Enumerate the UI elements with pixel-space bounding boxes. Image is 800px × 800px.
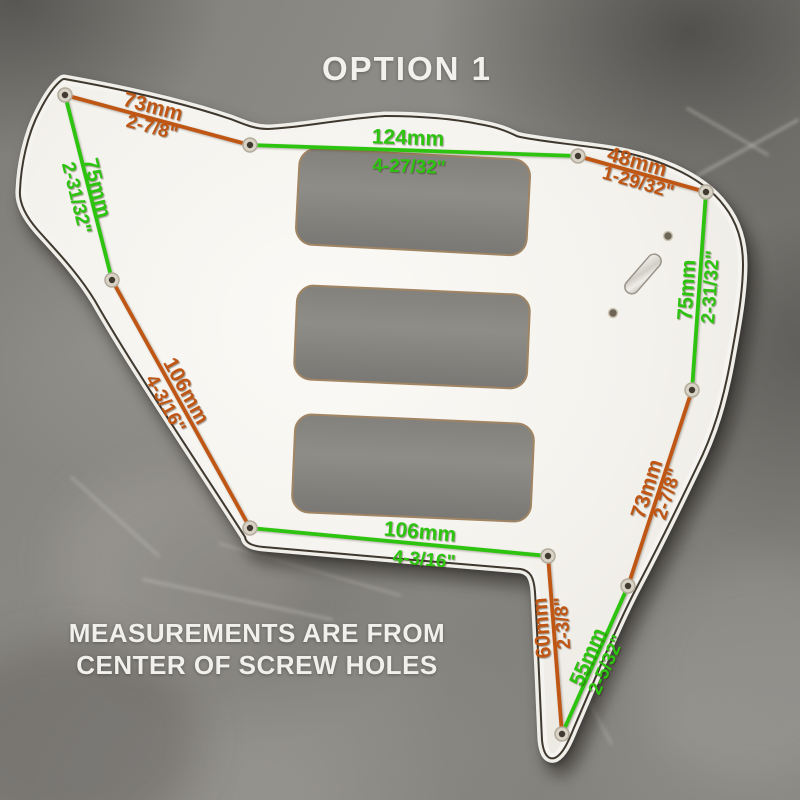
- page-title: OPTION 1: [7, 50, 800, 88]
- measure-label-right-edge-span-mm: 75mm: [673, 259, 700, 321]
- measure-label-neck-span-inch: 4-27/32": [372, 155, 446, 179]
- screw-hole-2: [243, 138, 257, 152]
- screw-hole-4: [699, 185, 713, 199]
- screw-hole-6-bore: [109, 277, 115, 283]
- pickup-cutouts: [291, 148, 534, 522]
- pickup-cutout-3: [291, 414, 534, 522]
- screw-hole-1-bore: [62, 92, 68, 98]
- measurement-note: MEASUREMENTS ARE FROM CENTER OF SCREW HO…: [57, 617, 457, 681]
- pickup-cutout-2: [294, 285, 531, 389]
- screw-hole-6: [105, 273, 119, 287]
- screw-hole-8-bore: [545, 553, 551, 559]
- screw-hole-3-bore: [575, 153, 581, 159]
- measurement-note-line1: MEASUREMENTS ARE FROM: [57, 617, 457, 649]
- screw-hole-1: [58, 88, 72, 102]
- photo-scene: 73mm2-7/8"124mm4-27/32"48mm1-29/32"75mm2…: [0, 0, 800, 800]
- screw-hole-7-bore: [247, 525, 253, 531]
- screw-hole-8: [541, 549, 555, 563]
- screw-hole-5-bore: [689, 387, 695, 393]
- screw-hole-9: [621, 579, 635, 593]
- screw-hole-9-bore: [625, 583, 631, 589]
- measurement-note-line2: CENTER OF SCREW HOLES: [57, 649, 457, 681]
- screw-hole-2-bore: [247, 142, 253, 148]
- screw-hole-4-bore: [703, 189, 709, 195]
- measure-label-neck-span-mm: 124mm: [371, 125, 444, 151]
- screw-hole-10: [555, 727, 569, 741]
- small-mount-hole-2: [609, 309, 618, 318]
- small-mount-hole-1: [664, 232, 673, 241]
- screw-hole-7: [243, 521, 257, 535]
- screw-hole-10-bore: [559, 731, 565, 737]
- screw-hole-3: [571, 149, 585, 163]
- screw-hole-5: [685, 383, 699, 397]
- measure-label-tail-vertical-inch: 2-3/8": [551, 596, 576, 650]
- measure-label-bottom-span-inch: 4-3/16": [392, 547, 456, 573]
